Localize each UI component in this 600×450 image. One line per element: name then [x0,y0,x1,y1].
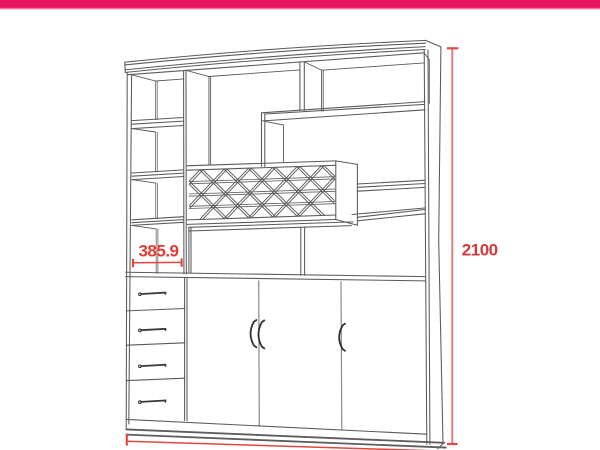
svg-text:2100: 2100 [462,241,498,260]
svg-text:385.9: 385.9 [138,241,178,260]
